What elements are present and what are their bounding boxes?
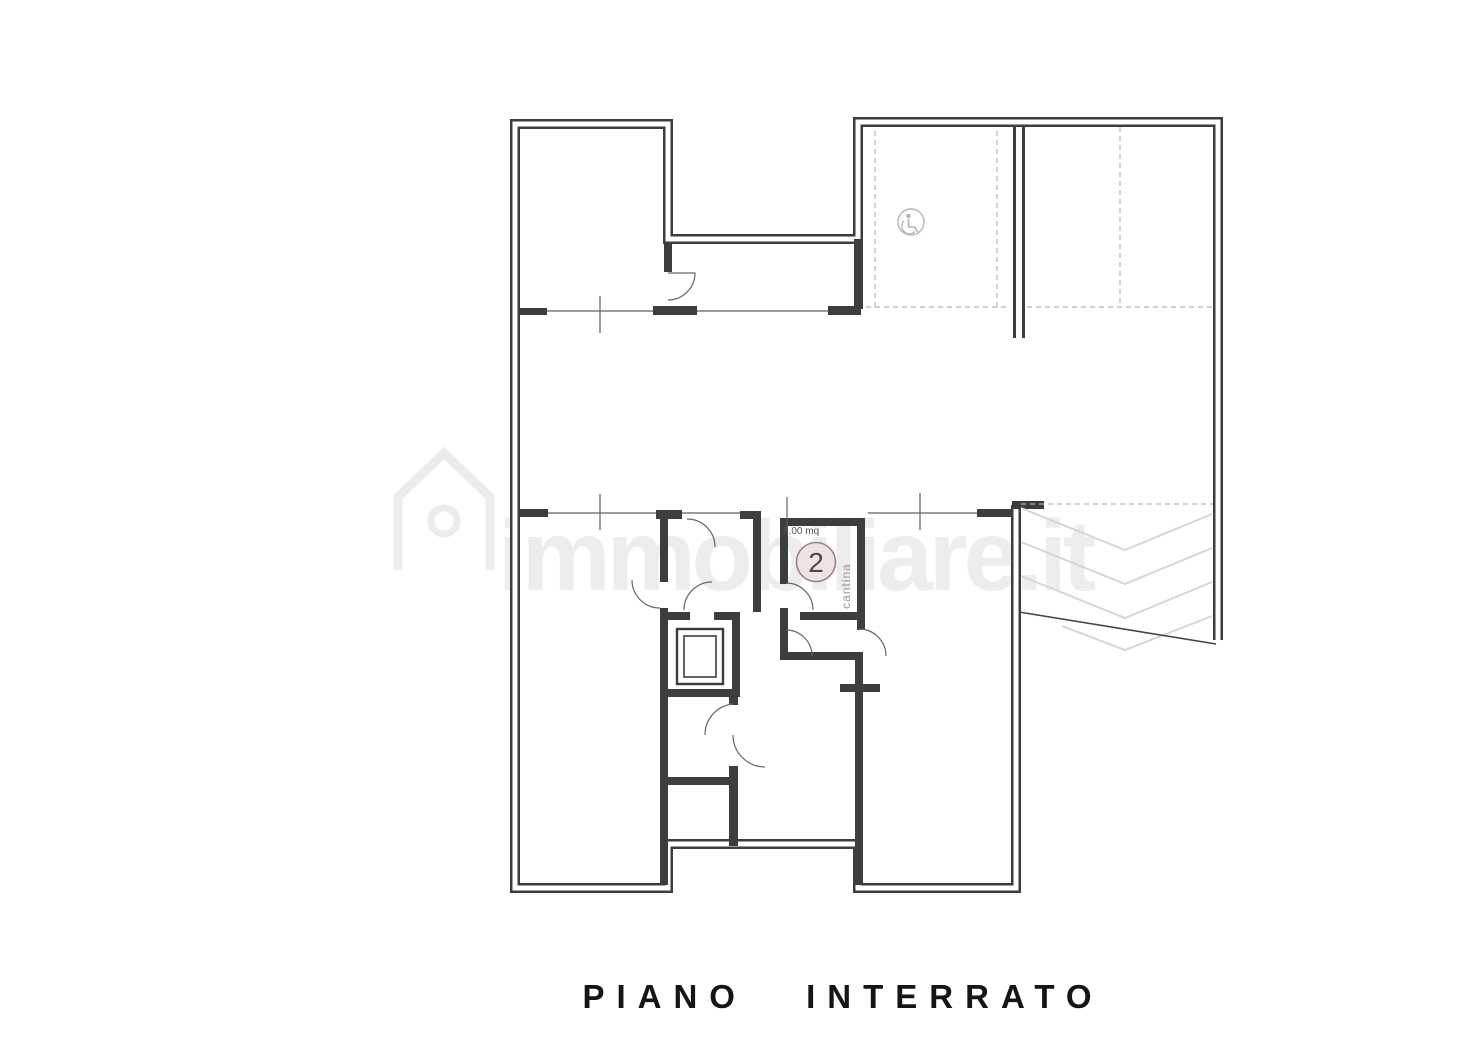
unit-number: 2 [808, 547, 824, 578]
elevator [677, 629, 723, 684]
floor-title: PIANO INTERRATO [582, 978, 1103, 1015]
cantina-area-label: 5.00 mq [783, 526, 819, 537]
wheelchair-icon [898, 209, 924, 235]
immobiliare-watermark: immobiliare.it [398, 453, 1096, 612]
floorplan-drawing: immobiliare.it [0, 0, 1484, 1050]
cantina-room-label: cantina [839, 563, 853, 609]
opening-lines [547, 296, 977, 530]
house-icon-dot [431, 508, 457, 534]
floorplan-page: immobiliare.it [0, 0, 1484, 1050]
parking-dashed-lines [866, 127, 1213, 504]
ramp-edge-line [1019, 612, 1216, 644]
